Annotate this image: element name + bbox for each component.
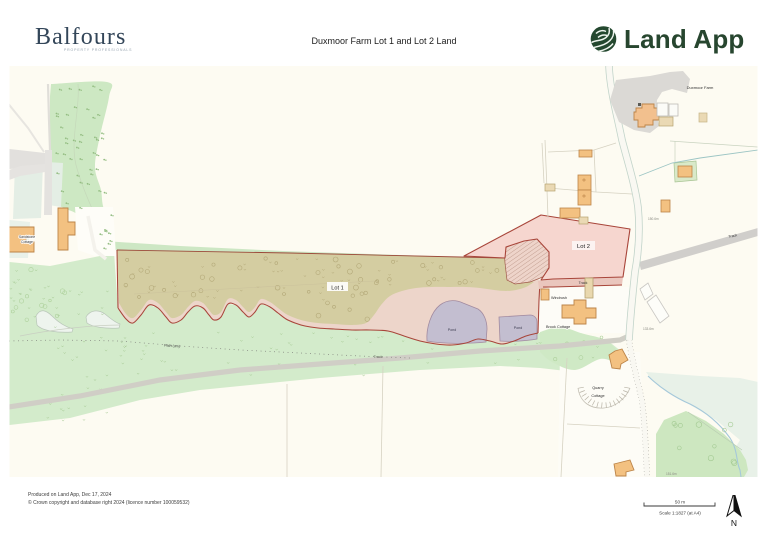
svg-text:Brook Cottage: Brook Cottage <box>546 325 570 329</box>
svg-text:Lot 1: Lot 1 <box>331 286 343 292</box>
svg-text:N: N <box>731 518 737 528</box>
svg-text:Quarry: Quarry <box>592 386 604 390</box>
svg-text:150.6m: 150.6m <box>648 217 659 221</box>
svg-text:Duxmoor Farm: Duxmoor Farm <box>687 85 714 90</box>
svg-text:Scale 1:1827 (at A4): Scale 1:1827 (at A4) <box>659 511 701 516</box>
svg-text:Cottage: Cottage <box>21 240 33 244</box>
svg-text:Lot 2: Lot 2 <box>577 244 590 250</box>
svg-text:Track: Track <box>579 281 588 285</box>
svg-text:50 m: 50 m <box>675 500 685 505</box>
svg-text:Pond: Pond <box>448 328 456 332</box>
svg-text:151.6m: 151.6m <box>666 472 677 476</box>
svg-text:Sandstone: Sandstone <box>19 235 35 239</box>
svg-text:Track: Track <box>374 355 383 359</box>
svg-text:133.6m: 133.6m <box>643 327 654 331</box>
svg-text:Cottage: Cottage <box>591 394 604 398</box>
svg-text:Pond: Pond <box>514 326 522 330</box>
svg-text:Windrush: Windrush <box>551 296 567 300</box>
